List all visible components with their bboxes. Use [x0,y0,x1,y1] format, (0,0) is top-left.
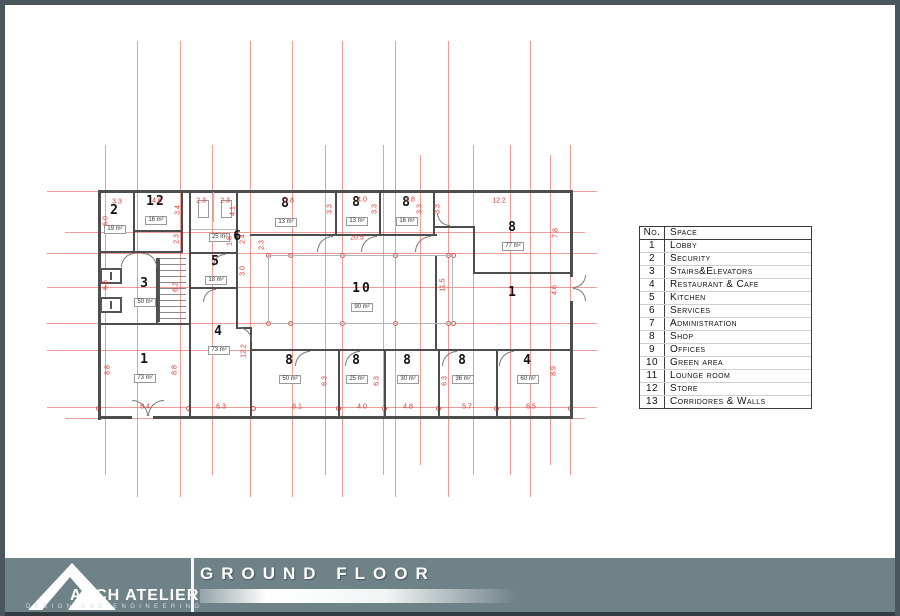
legend-row: 2Security [640,253,811,266]
grid-line [292,41,293,497]
legend-header-space: Space [665,227,811,239]
dimension-label: 12.2 [492,198,506,205]
dimension-label: 2.3 [174,234,181,244]
wall [189,190,191,418]
room-number: 3 [113,278,177,290]
room-area-badge: 50 m² [279,375,300,384]
door-swing-icon [203,289,216,302]
wall [250,349,437,351]
grid-line [448,41,449,497]
grid-line [473,145,474,475]
room-label: 1 [481,287,545,299]
door-swing-icon [317,236,333,252]
dimension-label: 3.0 [240,266,247,276]
legend-no-cell: 9 [640,344,665,356]
grid-line [510,145,511,475]
legend-row: 5Kitchen [640,292,811,305]
dimension-label: 3.3 [327,204,334,214]
grid-line [395,41,396,497]
dimension-label: 6.3 [216,404,226,411]
room-label: 877 m² [481,222,545,252]
room-label: 350 m² [113,278,177,308]
dimension-label: 4.6 [552,285,559,295]
partition-line [325,255,326,323]
dimension-label: 4.0 [357,197,367,204]
wall [435,226,475,228]
legend-row: 10Green area [640,357,811,370]
dimension-label: 20.5 [350,235,364,242]
grid-line [47,407,597,408]
legend-table: No. Space 1Lobby2Security3Stairs&Elevato… [639,226,812,409]
door-swing-icon [143,253,157,267]
legend-row: 12Store [640,383,811,396]
wall [570,190,573,277]
dimension-label: 12.2 [241,344,248,358]
dimension-label: 3.3 [372,204,379,214]
footer-divider [191,558,194,612]
brand-tagline: DESIGN AND ENGINEERING [26,604,203,610]
room-area-badge: 60 m² [517,375,538,384]
room-number: 8 [431,355,495,367]
room-number: 1 [481,287,545,299]
partition-line [191,229,236,230]
legend-space-cell: Green area [665,357,811,369]
legend-row: 13Corridores & Walls [640,396,811,408]
legend-no-cell: 6 [640,305,665,317]
legend-space-cell: Offices [665,344,811,356]
dimension-label: 2.3 [259,240,266,250]
grid-line [342,41,343,497]
dimension-label: 8.8 [105,365,112,375]
legend-no-cell: 4 [640,279,665,291]
dimension-label: 3.3 [417,204,424,214]
legend-no-cell: 3 [640,266,665,278]
dimension-label: 6.3 [442,376,449,386]
legend-space-cell: Corridores & Walls [665,396,811,408]
dimension-label: 8.9 [551,366,558,376]
grid-line [250,41,251,497]
legend-row: 11Lounge room [640,370,811,383]
room-label: 1090 m² [330,283,394,313]
dimension-label: 8.4 [140,404,150,411]
dimension-label: 4.6 [152,198,162,205]
wall [98,416,132,419]
room-area-badge: 73 m² [134,374,155,383]
partition-line [268,255,269,323]
legend-header: No. Space [640,227,811,240]
room-area-badge: 18 m² [205,276,226,285]
room-area-badge: 77 m² [502,242,523,251]
grid-line [137,41,138,497]
room-area-badge: 36 m² [452,375,473,384]
wall [473,226,475,274]
legend-no-cell: 10 [640,357,665,369]
wall [153,416,573,419]
title-block: ARCH ATELIER DESIGN AND ENGINEERING GROU… [0,558,900,616]
footer-bottom-strip [0,612,900,616]
legend-no-cell: 8 [640,331,665,343]
dimension-label: 1.8 [227,236,234,246]
wall [570,301,573,418]
wall [98,323,191,325]
room-area-badge: 50 m² [134,298,155,307]
partition-line [213,192,214,222]
room-area-badge: 30 m² [397,375,418,384]
wall [473,272,573,274]
legend-row: 7Administration [640,318,811,331]
legend-space-cell: Services [665,305,811,317]
room-area-badge: 90 m² [351,303,372,312]
legend-row: 3Stairs&Elevators [640,266,811,279]
legend-no-cell: 11 [640,370,665,382]
room-label: 850 m² [258,355,322,385]
room-area-badge: 16 m² [396,217,417,226]
dimension-label: 6.2 [173,282,180,292]
legend-space-cell: Security [665,253,811,265]
legend-no-cell: 13 [640,396,665,408]
dimension-label: 2.3 [196,198,206,205]
legend-space-cell: Restaurant & Cafe [665,279,811,291]
dimension-label: 4.0 [357,404,367,411]
title-gradient-bar [200,589,572,603]
room-area-badge: 16 m² [145,216,166,225]
legend-row: 4Restaurant & Cafe [640,279,811,292]
legend-space-cell: Lobby [665,240,811,252]
room-area-badge: 13 m² [275,218,296,227]
legend-space-cell: Kitchen [665,292,811,304]
dimension-label: 3.8 [284,198,294,205]
brand-name: ARCH ATELIER [70,587,199,605]
partition-line [268,323,453,324]
dimension-label: 7.8 [553,228,560,238]
dimension-label: 8.8 [172,365,179,375]
room-number: 1 [113,354,177,366]
dimension-label: 4.8 [405,197,415,204]
room-label: 518 m² [184,256,248,286]
room-number: 10 [330,283,394,295]
dimension-label: 4.8 [403,404,413,411]
dimension-label: 4.1 [230,206,237,216]
room-number: 8 [481,222,545,234]
wall [98,251,183,253]
legend-space-cell: Stairs&Elevators [665,266,811,278]
legend-no-cell: 12 [640,383,665,395]
legend-space-cell: Shop [665,331,811,343]
wall [435,255,437,351]
room-area-badge: 19 m² [104,225,125,234]
legend-row: 9Offices [640,344,811,357]
dimension-label: 11.5 [440,278,447,291]
legend-no-cell: 1 [640,240,665,252]
dimension-label: 2.4 [240,234,247,244]
dimension-label: 2.3 [220,198,230,205]
legend-no-cell: 7 [640,318,665,330]
partition-line [452,255,453,323]
door-swing-icon [415,236,431,252]
room-label: 173 m² [113,354,177,384]
door-swing-icon [121,253,135,267]
legend-row: 8Shop [640,331,811,344]
dimension-label: 3.3 [112,199,122,206]
dimension-label: 3.3 [435,204,442,214]
room-number: 8 [258,355,322,367]
legend-no-cell: 5 [640,292,665,304]
dimension-label: 5.7 [462,404,472,411]
legend-space-cell: Administration [665,318,811,330]
legend-space-cell: Store [665,383,811,395]
grid-line [530,41,531,497]
dimension-label: 8.1 [292,404,302,411]
drawing-sheet: 219 m²1216 m²25 m²6518 m²813 m²813 m²816… [0,0,900,616]
dimension-label: 6.5 [526,404,536,411]
room-area-badge: 25 m² [346,375,367,384]
wall [236,289,238,329]
room-number: 4 [187,326,251,338]
door-swing-icon [148,400,164,416]
room-area-badge: 13 m² [346,217,367,226]
dimension-label: 3.4 [175,205,182,215]
legend-row: 6Services [640,305,811,318]
dimension-label: 6.3 [322,376,329,386]
dimension-label: 6.3 [374,376,381,386]
legend-header-no: No. [640,227,665,239]
room-number: 5 [184,256,248,268]
wall [250,234,437,236]
legend-no-cell: 2 [640,253,665,265]
legend-space-cell: Lounge room [665,370,811,382]
sheet-title: GROUND FLOOR [200,564,436,584]
legend-row: 1Lobby [640,240,811,253]
room-area-badge: 73 m² [208,346,229,355]
partition-line [268,255,453,256]
dimension-label: 6.0 [103,216,110,226]
door-swing-icon [573,288,586,301]
dimension-label: 6.6 [103,280,110,290]
legend-body: 1Lobby2Security3Stairs&Elevators4Restaur… [640,240,811,408]
